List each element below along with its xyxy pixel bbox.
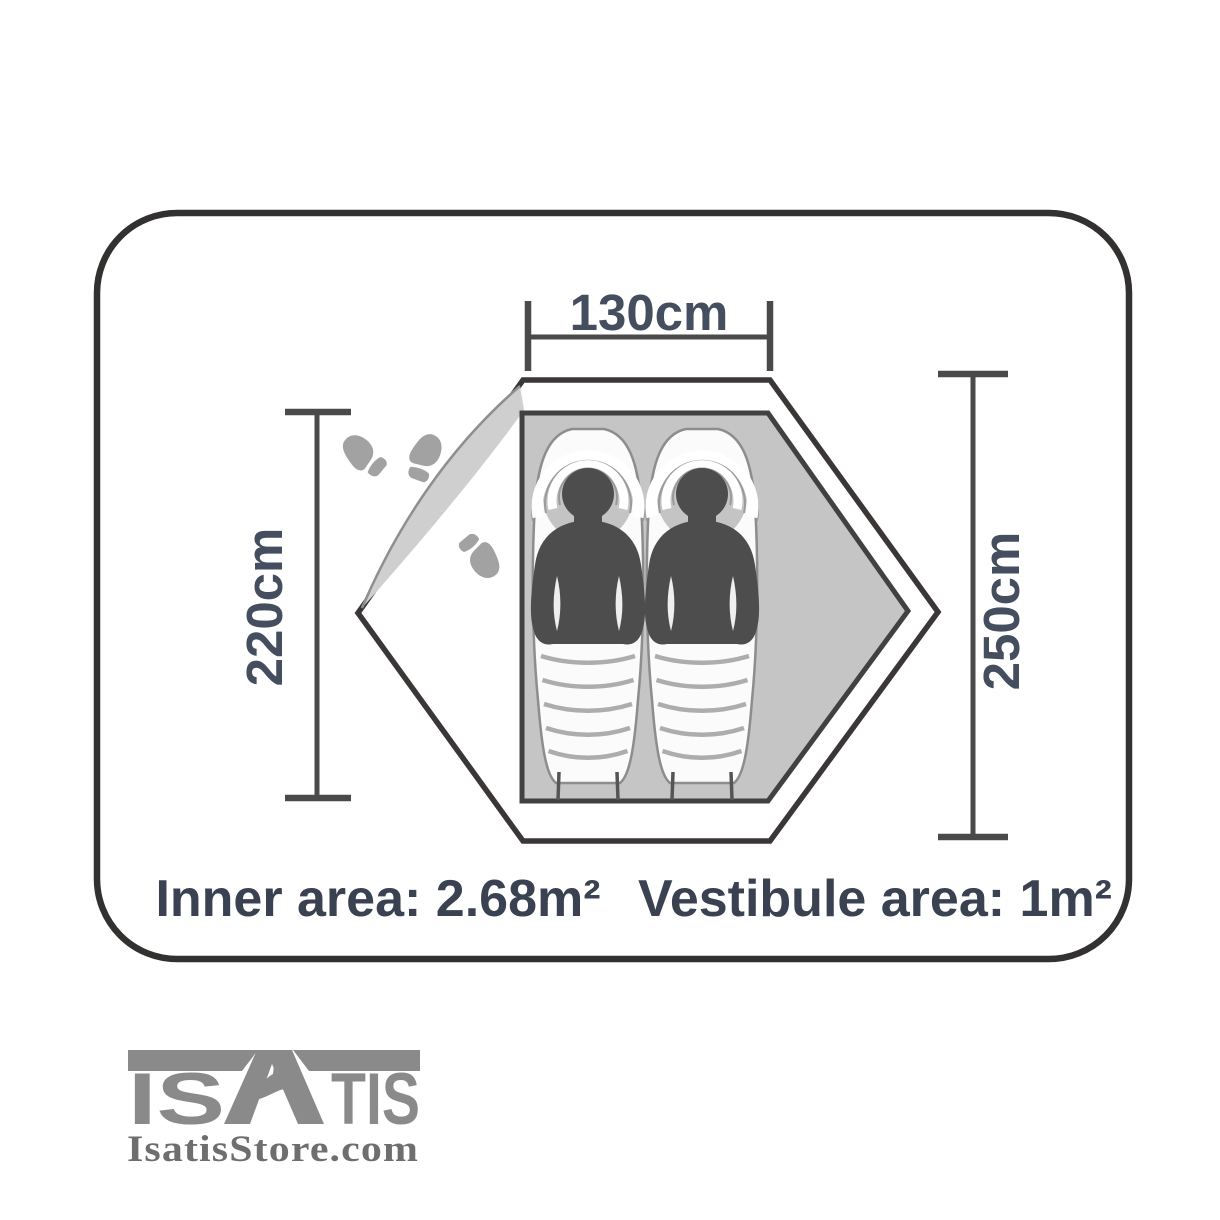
- dimension-inner-length-label: 220cm: [236, 528, 293, 687]
- logo-bar-left: [128, 1050, 258, 1071]
- logo-segment-right: TIS: [331, 1059, 420, 1140]
- sleeping-person-icon: [645, 429, 759, 800]
- tent-spec-image: 130cm 220cm 250cm Inner area: 2.68m² Ves…: [0, 0, 1220, 1220]
- vestibule-area-caption: Vestibule area: 1m²: [638, 870, 1112, 928]
- website-url: IsatisStore.com: [127, 1129, 419, 1170]
- dimension-outer-length-label: 250cm: [973, 532, 1030, 691]
- sleeping-person-icon: [531, 429, 645, 800]
- inner-area-caption: Inner area: 2.68m²: [155, 870, 600, 928]
- dimension-width-label: 130cm: [570, 284, 729, 341]
- logo-segment-left: IS: [128, 1059, 225, 1140]
- isatis-logo: IS TIS IsatisStore.com: [127, 1050, 420, 1170]
- tent-floorplan-diagram: 130cm 220cm 250cm Inner area: 2.68m² Ves…: [0, 0, 1220, 1220]
